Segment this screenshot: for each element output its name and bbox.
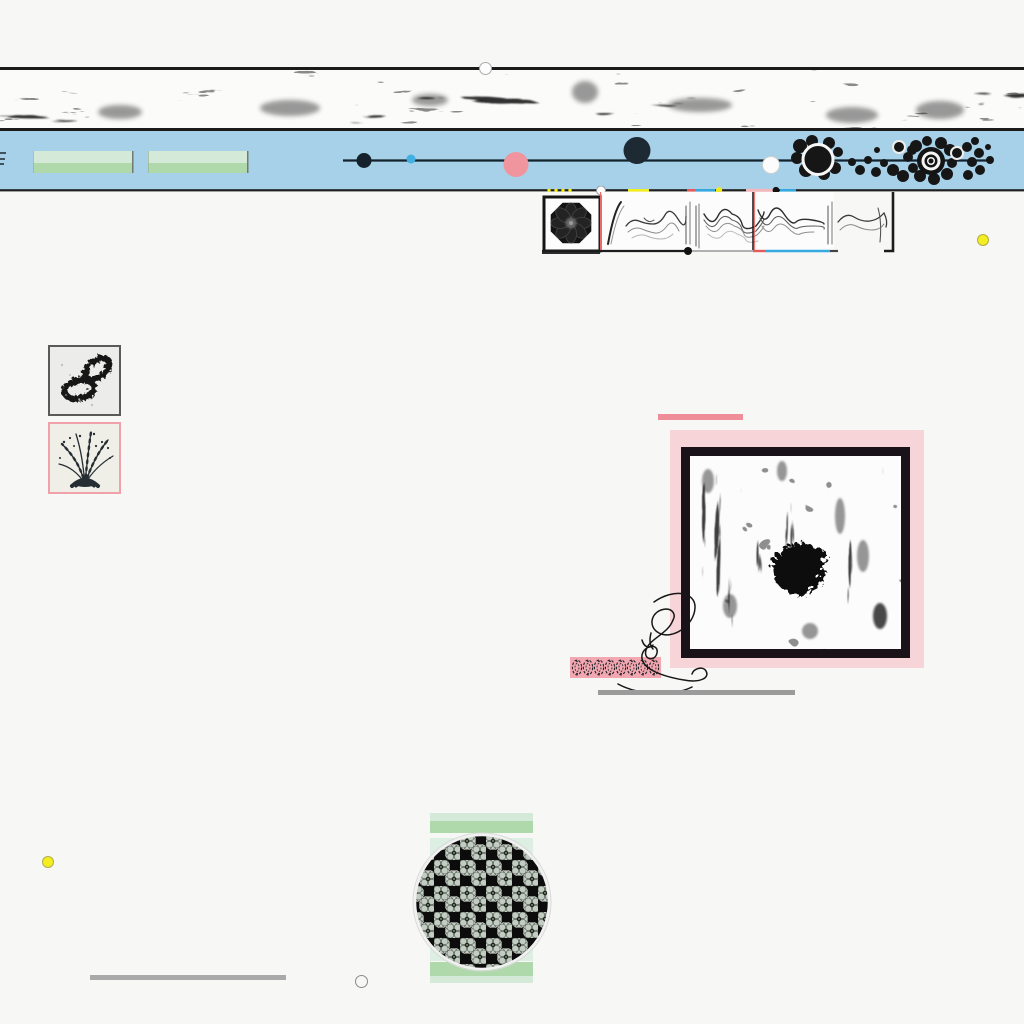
ringed-blob-large <box>803 145 833 175</box>
target-rings <box>917 147 945 175</box>
timeline-black-dot <box>357 153 372 168</box>
timeline-navy-dot <box>624 137 651 164</box>
green-block-2 <box>148 151 249 173</box>
white-ring-dot-bottom <box>355 975 368 988</box>
yellow-dot-left <box>42 856 54 868</box>
blue-band-content <box>0 131 1024 190</box>
ink-texture-band <box>0 70 1024 128</box>
green-block-1 <box>33 151 134 173</box>
panel-baseline-dot <box>684 247 692 255</box>
yellow-dot-right <box>977 234 989 246</box>
ringed-blob-small-1 <box>893 141 905 153</box>
ink-loops-art <box>50 347 119 414</box>
band-left-edge-marks <box>0 153 6 164</box>
white-ring-marker-top <box>479 62 492 75</box>
timeline-pink-dot <box>504 152 529 177</box>
reading-panel <box>536 192 900 256</box>
ink-grass-art <box>50 424 119 492</box>
rosette-bloom <box>408 808 558 990</box>
ink-band-speckle <box>0 70 1024 128</box>
right-bracket <box>884 192 893 251</box>
timeline-blue-dot <box>407 155 416 164</box>
ringed-blob-small-2 <box>951 147 963 159</box>
framed-image-loops <box>48 345 121 416</box>
framed-image-grass <box>48 422 121 494</box>
timeline-white-dot <box>763 157 780 174</box>
abstract-collage-canvas <box>0 0 1024 1024</box>
artwork-accent-bar <box>658 414 743 420</box>
flower-stamp-box <box>542 197 600 254</box>
gray-bar-under-artwork <box>598 690 795 695</box>
gray-bar-bottom-left <box>90 975 286 980</box>
